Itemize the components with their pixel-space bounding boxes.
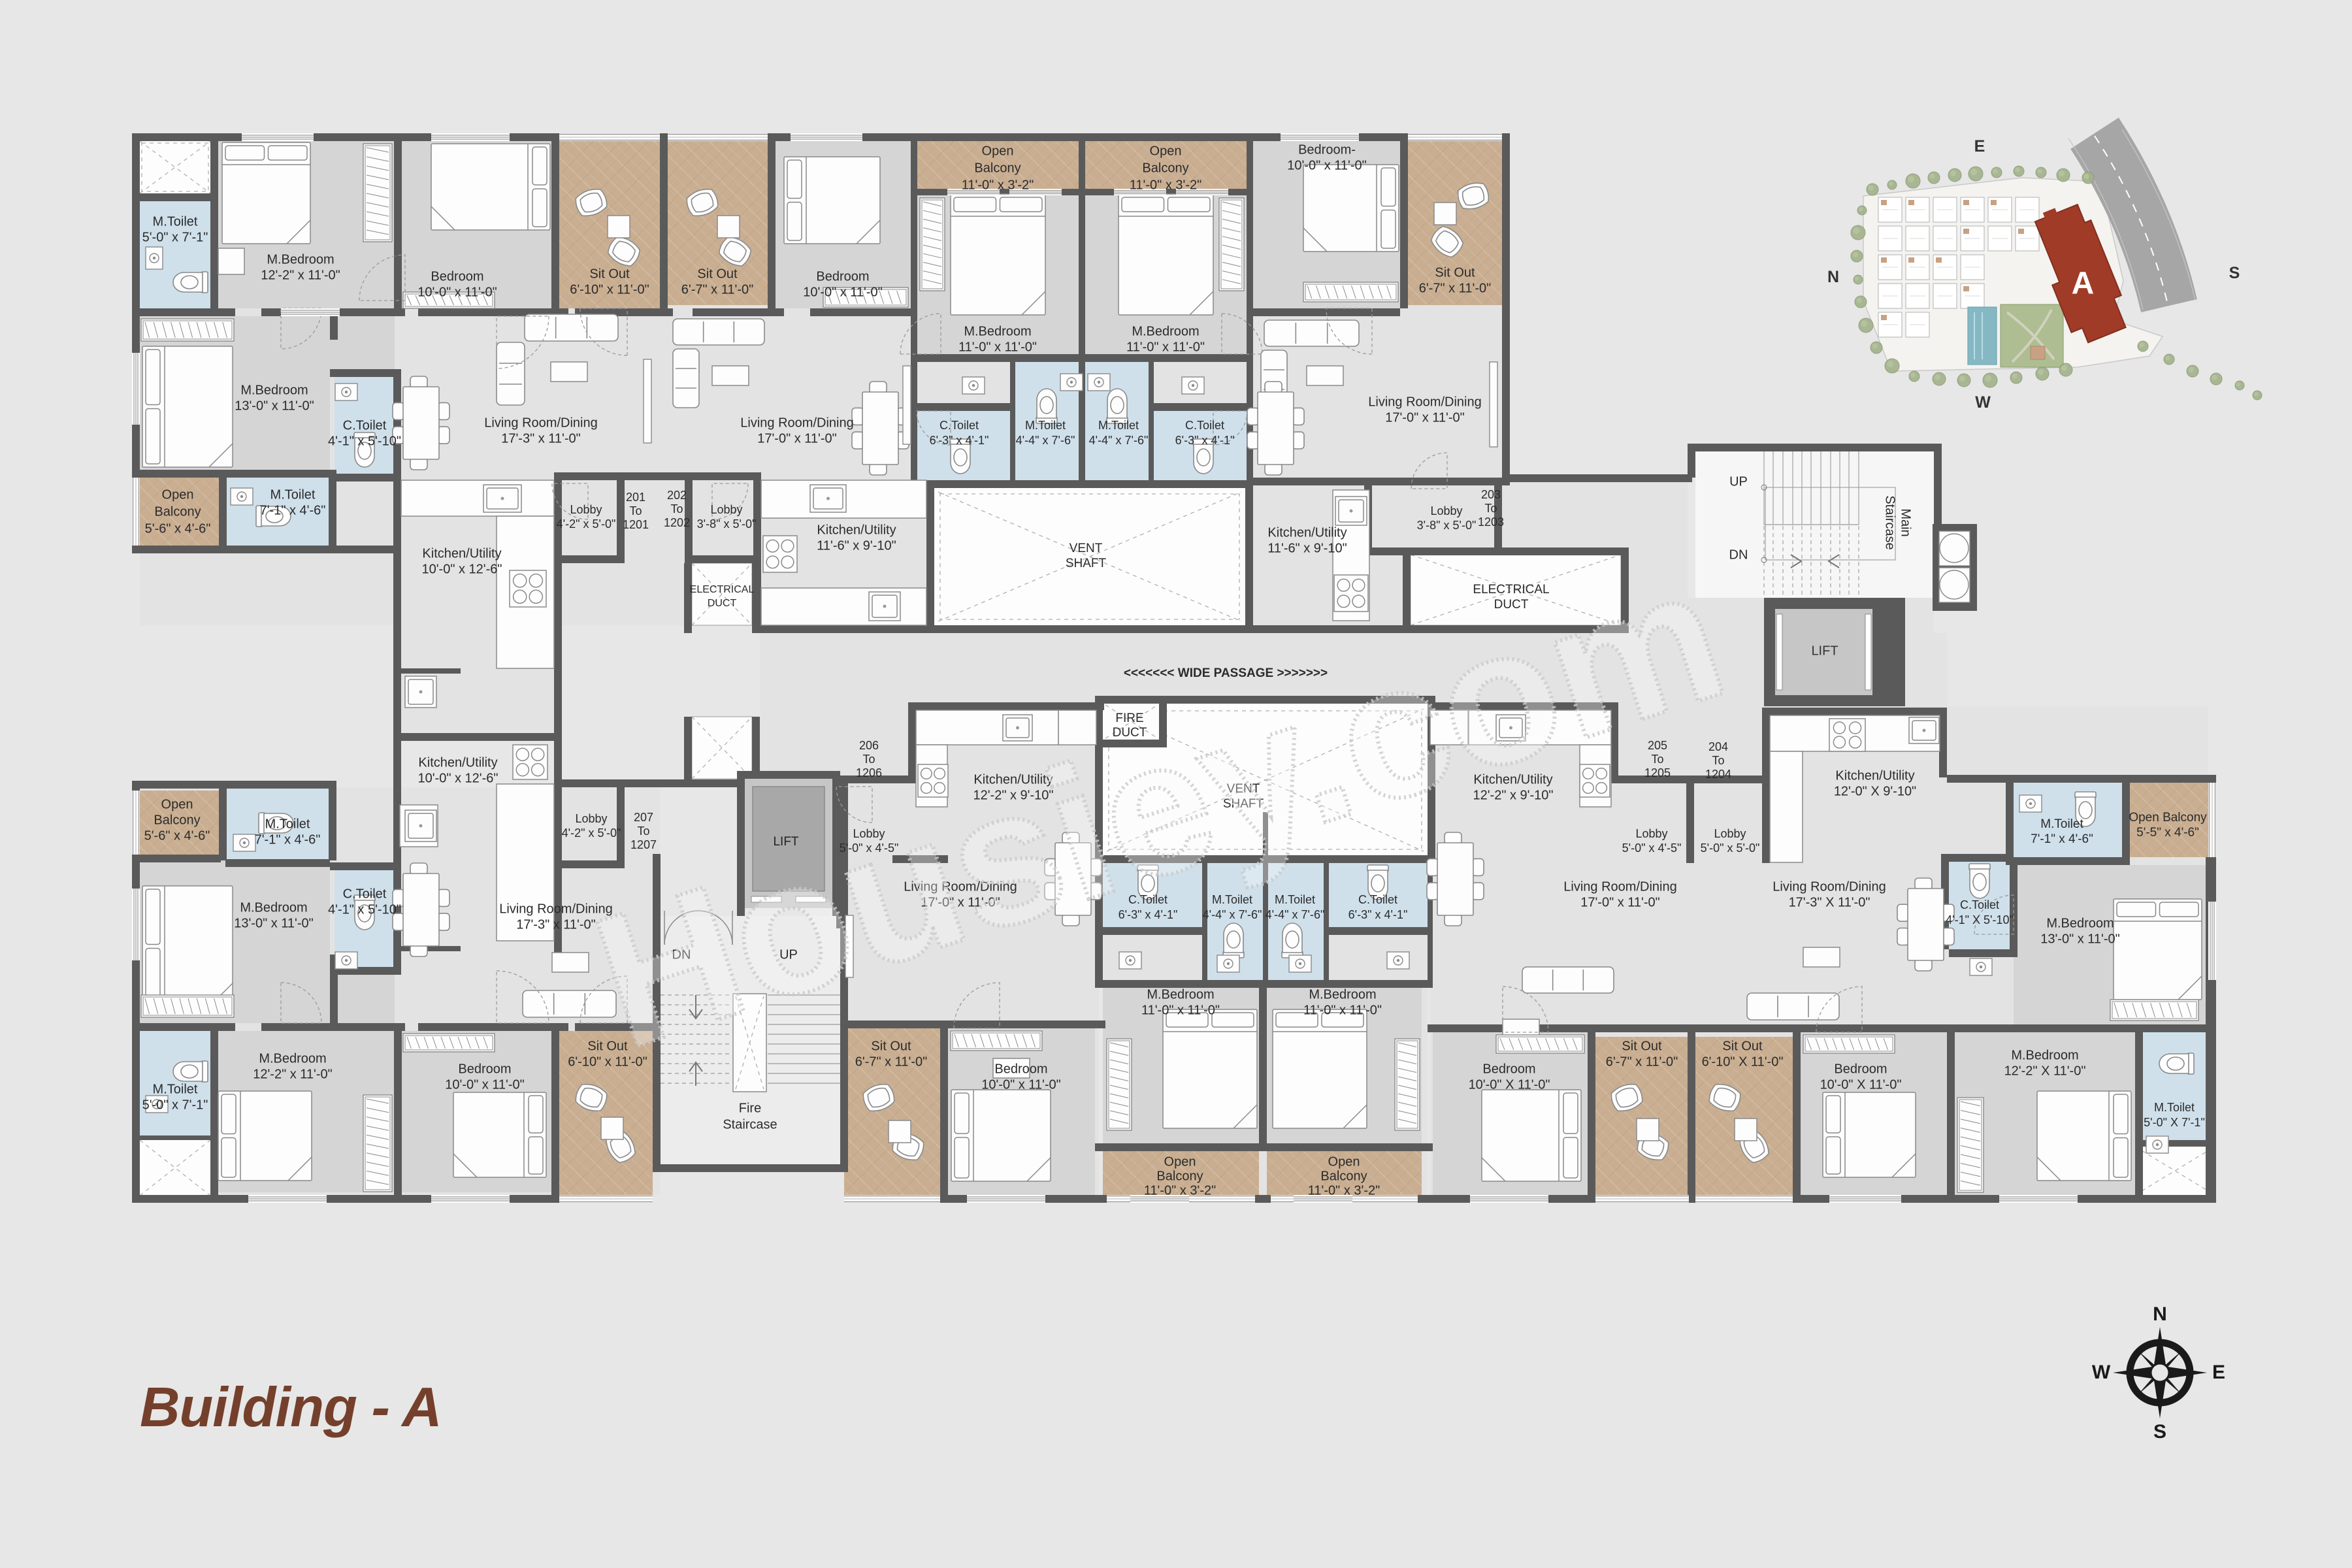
svg-text:M.Toilet: M.Toilet [2040,817,2083,831]
svg-text:SHAFT: SHAFT [1066,557,1107,570]
svg-text:5'-0" x 7'-1": 5'-0" x 7'-1" [142,230,208,244]
svg-text:Staircase: Staircase [1883,495,1897,549]
svg-text:1207: 1207 [630,838,657,851]
svg-text:Open: Open [982,144,1014,158]
svg-text:Kitchen/Utility: Kitchen/Utility [1267,525,1347,540]
svg-text:7'-1" x 4'-6": 7'-1" x 4'-6" [255,832,321,847]
svg-text:Balcony: Balcony [1320,1169,1367,1183]
svg-text:M.Bedroom: M.Bedroom [259,1051,326,1066]
svg-text:Living Room/Dining: Living Room/Dining [740,416,853,430]
svg-text:5'-5" x 4'-6": 5'-5" x 4'-6" [2136,826,2199,840]
svg-text:Sit Out: Sit Out [1435,265,1475,280]
svg-text:Kitchen/Utility: Kitchen/Utility [817,523,896,537]
svg-text:VENT: VENT [1070,542,1103,555]
svg-text:17'-3" x 11'-0": 17'-3" x 11'-0" [501,431,581,446]
svg-text:206: 206 [859,739,879,752]
svg-text:Balcony: Balcony [974,161,1021,175]
svg-text:Main: Main [1899,508,1913,536]
svg-text:7'-1" x 4'-6": 7'-1" x 4'-6" [2031,832,2093,846]
svg-text:M.Toilet: M.Toilet [265,817,310,831]
svg-text:10'-0" X 11'-0": 10'-0" X 11'-0" [1469,1077,1550,1092]
svg-text:C.Toilet: C.Toilet [1185,419,1224,432]
svg-text:6'-3" x 4'-1": 6'-3" x 4'-1" [1348,908,1408,921]
svg-text:Sit Out: Sit Out [697,267,738,281]
svg-text:DN: DN [1729,547,1748,562]
svg-text:Bedroom-: Bedroom- [1298,142,1356,157]
svg-text:13'-0" x 11'-0": 13'-0" x 11'-0" [2040,932,2120,946]
svg-text:11'-6" x 9'-10": 11'-6" x 9'-10" [1267,541,1347,555]
svg-text:To: To [670,502,683,515]
svg-text:1202: 1202 [664,516,690,529]
svg-text:E: E [1974,137,1985,155]
svg-text:11'-6" x 9'-10": 11'-6" x 9'-10" [817,538,896,553]
svg-text:Open: Open [162,487,194,502]
svg-text:E: E [2212,1362,2225,1383]
svg-text:Sit Out: Sit Out [587,1039,628,1053]
svg-text:10'-0" x 11'-0": 10'-0" x 11'-0" [1287,158,1367,172]
svg-text:Lobby: Lobby [575,812,607,825]
svg-text:C.Toilet: C.Toilet [1960,898,1999,911]
svg-text:Open: Open [1164,1154,1196,1169]
svg-text:11'-0" x 3'-2": 11'-0" x 3'-2" [1308,1183,1380,1198]
svg-text:4'-1" X 5'-10": 4'-1" X 5'-10" [1946,913,2014,926]
svg-text:201: 201 [626,491,645,504]
svg-text:Bedroom: Bedroom [1482,1062,1535,1076]
svg-text:C.Toilet: C.Toilet [343,418,387,433]
svg-text:1203: 1203 [1478,515,1504,529]
svg-text:S: S [2229,264,2240,282]
svg-text:12'-0" X 9'-10": 12'-0" X 9'-10" [1834,784,1916,798]
svg-text:6'-3" x 4'-1": 6'-3" x 4'-1" [930,434,989,447]
svg-text:M.Bedroom: M.Bedroom [240,900,307,915]
svg-text:To: To [629,504,642,517]
svg-text:6'-7" x 11'-0": 6'-7" x 11'-0" [1606,1054,1678,1069]
svg-text:To: To [637,825,649,838]
svg-text:LIFT: LIFT [1811,644,1838,658]
svg-text:10'-0" x 11'-0": 10'-0" x 11'-0" [417,285,497,299]
svg-text:Lobby: Lobby [710,503,742,516]
svg-text:ELECTRICAL: ELECTRICAL [690,584,755,595]
svg-text:10'-0" x 11'-0": 10'-0" x 11'-0" [803,285,883,299]
svg-text:Balcony: Balcony [154,813,200,827]
svg-text:M.Toilet: M.Toilet [153,214,198,229]
svg-text:M.Toilet: M.Toilet [270,487,316,502]
svg-text:Open: Open [1328,1154,1360,1169]
svg-text:Living Room/Dining: Living Room/Dining [1563,879,1676,894]
svg-text:Sit Out: Sit Out [1722,1039,1763,1053]
svg-text:M.Bedroom: M.Bedroom [2011,1048,2078,1062]
svg-text:Staircase: Staircase [723,1117,777,1132]
svg-text:M.Bedroom: M.Bedroom [1309,987,1376,1002]
svg-text:Bedroom: Bedroom [431,269,483,284]
svg-text:202: 202 [667,489,687,502]
svg-text:7'-1" x 4'-6": 7'-1" x 4'-6" [260,503,326,517]
svg-text:Sit Out: Sit Out [1622,1039,1662,1053]
svg-text:11'-0" x 11'-0": 11'-0" x 11'-0" [958,340,1037,354]
svg-text:11'-0" x 3'-2": 11'-0" x 3'-2" [1144,1183,1216,1198]
svg-text:UP: UP [1729,474,1748,489]
svg-text:6'-10" x 11'-0": 6'-10" x 11'-0" [570,282,649,297]
svg-text:M.Bedroom: M.Bedroom [240,383,308,397]
svg-text:Balcony: Balcony [1156,1169,1203,1183]
svg-text:6'-10" X 11'-0": 6'-10" X 11'-0" [1702,1054,1784,1069]
svg-text:4'-4" x 7'-6": 4'-4" x 7'-6" [1016,434,1075,447]
svg-text:Sit Out: Sit Out [589,267,630,281]
svg-text:Open: Open [161,797,193,811]
svg-text:5'-0" X 7'-1": 5'-0" X 7'-1" [2144,1116,2205,1129]
svg-text:12'-2" x 11'-0": 12'-2" x 11'-0" [253,1067,333,1081]
svg-text:17'-0" x 11'-0": 17'-0" x 11'-0" [757,431,837,446]
svg-text:A: A [2072,267,2095,301]
svg-text:N: N [1827,268,1839,286]
svg-text:10'-0" x 11'-0": 10'-0" x 11'-0" [445,1077,525,1092]
svg-text:Fire: Fire [739,1101,761,1115]
svg-text:Lobby: Lobby [1430,504,1462,517]
svg-text:M.Bedroom: M.Bedroom [1132,324,1199,338]
svg-text:Living Room/Dining: Living Room/Dining [484,416,597,430]
svg-text:11'-0" x 11'-0": 11'-0" x 11'-0" [1126,340,1205,354]
svg-text:5'-0" x 4'-5": 5'-0" x 4'-5" [1622,841,1682,855]
svg-text:M.Bedroom: M.Bedroom [964,324,1031,338]
svg-text:5'-6" x 4'-6": 5'-6" x 4'-6" [144,828,210,843]
svg-text:Open Balcony: Open Balcony [2129,811,2207,825]
svg-text:Building - A: Building - A [140,1377,442,1439]
svg-text:11'-0" x 3'-2": 11'-0" x 3'-2" [962,178,1034,192]
svg-text:4'-4" x 7'-6": 4'-4" x 7'-6" [1203,908,1262,921]
svg-text:4'-4" x 7'-6": 4'-4" x 7'-6" [1266,908,1325,921]
svg-text:11'-0" x 11'-0": 11'-0" x 11'-0" [1141,1003,1220,1017]
svg-text:Kitchen/Utility: Kitchen/Utility [418,755,497,770]
svg-text:17'-0" x 11'-0": 17'-0" x 11'-0" [1580,895,1660,909]
svg-text:M.Bedroom: M.Bedroom [2046,916,2114,930]
svg-text:17'-0" x 11'-0": 17'-0" x 11'-0" [1385,410,1465,425]
svg-text:4'-2" x 5'-0": 4'-2" x 5'-0" [557,517,616,531]
svg-text:4'-4" x 7'-6": 4'-4" x 7'-6" [1089,434,1149,447]
svg-text:Balcony: Balcony [1142,161,1188,175]
svg-text:Bedroom: Bedroom [994,1062,1047,1076]
svg-text:Bedroom: Bedroom [816,269,869,284]
svg-text:1201: 1201 [623,518,649,531]
svg-text:W: W [2092,1362,2111,1383]
svg-text:Balcony: Balcony [154,504,201,519]
svg-text:M.Toilet: M.Toilet [1098,419,1139,432]
svg-text:Open: Open [1150,144,1182,158]
svg-text:1206: 1206 [856,766,882,779]
svg-text:Bedroom: Bedroom [1834,1062,1887,1076]
svg-text:17'-3" X 11'-0": 17'-3" X 11'-0" [1789,895,1870,909]
svg-text:203: 203 [1481,488,1501,501]
svg-text:Lobby: Lobby [1635,827,1667,840]
svg-text:4'-1" x 5'-10": 4'-1" x 5'-10" [328,434,401,448]
svg-text:10'-0" X 11'-0": 10'-0" X 11'-0" [1820,1077,1902,1092]
svg-text:N: N [2153,1303,2167,1325]
svg-text:C.Toilet: C.Toilet [343,887,387,901]
svg-text:1204: 1204 [1705,768,1731,781]
svg-text:6'-7" x 11'-0": 6'-7" x 11'-0" [855,1054,927,1069]
svg-text:6'-3" x 4'-1": 6'-3" x 4'-1" [1175,434,1235,447]
svg-text:5'-0" x 7'-1": 5'-0" x 7'-1" [142,1098,208,1112]
svg-text:12'-2" x 11'-0": 12'-2" x 11'-0" [261,268,340,282]
svg-text:Living Room/Dining: Living Room/Dining [1368,395,1481,409]
svg-text:Lobby: Lobby [1714,827,1746,840]
svg-text:4'-1" x 5'-10": 4'-1" x 5'-10" [328,902,401,917]
svg-text:5'-6" x 4'-6": 5'-6" x 4'-6" [145,521,211,536]
svg-text:Kitchen/Utility: Kitchen/Utility [1835,768,1914,783]
svg-text:Kitchen/Utility: Kitchen/Utility [422,546,501,561]
svg-text:13'-0" x 11'-0": 13'-0" x 11'-0" [235,399,314,413]
svg-text:M.Toilet: M.Toilet [1275,893,1315,906]
svg-text:204: 204 [1708,740,1728,753]
svg-text:3'-8" x 5'-0": 3'-8" x 5'-0" [1417,519,1477,532]
svg-text:C.Toilet: C.Toilet [1358,893,1397,906]
svg-text:1205: 1205 [1644,766,1671,779]
svg-text:11'-0" x 3'-2": 11'-0" x 3'-2" [1130,178,1201,192]
svg-text:10'-0" x 12'-6": 10'-0" x 12'-6" [421,562,502,576]
svg-text:11'-0" x 11'-0": 11'-0" x 11'-0" [1303,1003,1382,1017]
svg-text:M.Toilet: M.Toilet [1025,419,1066,432]
svg-text:M.Toilet: M.Toilet [2154,1101,2195,1114]
svg-text:To: To [1712,754,1724,767]
svg-text:To: To [862,753,875,766]
svg-text:13'-0" x 11'-0": 13'-0" x 11'-0" [234,916,314,930]
svg-text:M.Bedroom: M.Bedroom [1147,987,1214,1002]
svg-text:10'-0" x 12'-6": 10'-0" x 12'-6" [417,771,498,785]
svg-text:S: S [2153,1421,2166,1443]
svg-text:3'-8" x 5'-0": 3'-8" x 5'-0" [697,517,757,531]
svg-text:207: 207 [634,811,653,824]
svg-text:DUCT: DUCT [708,598,737,609]
svg-text:10'-0" x 11'-0": 10'-0" x 11'-0" [981,1077,1061,1092]
svg-text:12'-2" X 11'-0": 12'-2" X 11'-0" [2004,1064,2086,1078]
svg-text:C.Toilet: C.Toilet [939,419,979,432]
svg-text:M.Toilet: M.Toilet [153,1082,198,1096]
svg-text:6'-7" x 11'-0": 6'-7" x 11'-0" [681,282,753,297]
svg-text:W: W [1975,393,1991,412]
svg-text:Living Room/Dining: Living Room/Dining [1772,879,1886,894]
svg-text:Bedroom: Bedroom [458,1062,511,1076]
svg-text:Lobby: Lobby [570,503,602,516]
svg-text:M.Bedroom: M.Bedroom [267,252,334,267]
svg-text:To: To [1484,502,1497,515]
svg-text:4'-2" x 5'-0": 4'-2" x 5'-0" [562,826,621,840]
svg-text:5'-0" x 5'-0": 5'-0" x 5'-0" [1701,841,1760,855]
svg-text:Sit Out: Sit Out [871,1039,911,1053]
svg-text:6'-7" x 11'-0": 6'-7" x 11'-0" [1419,281,1491,295]
